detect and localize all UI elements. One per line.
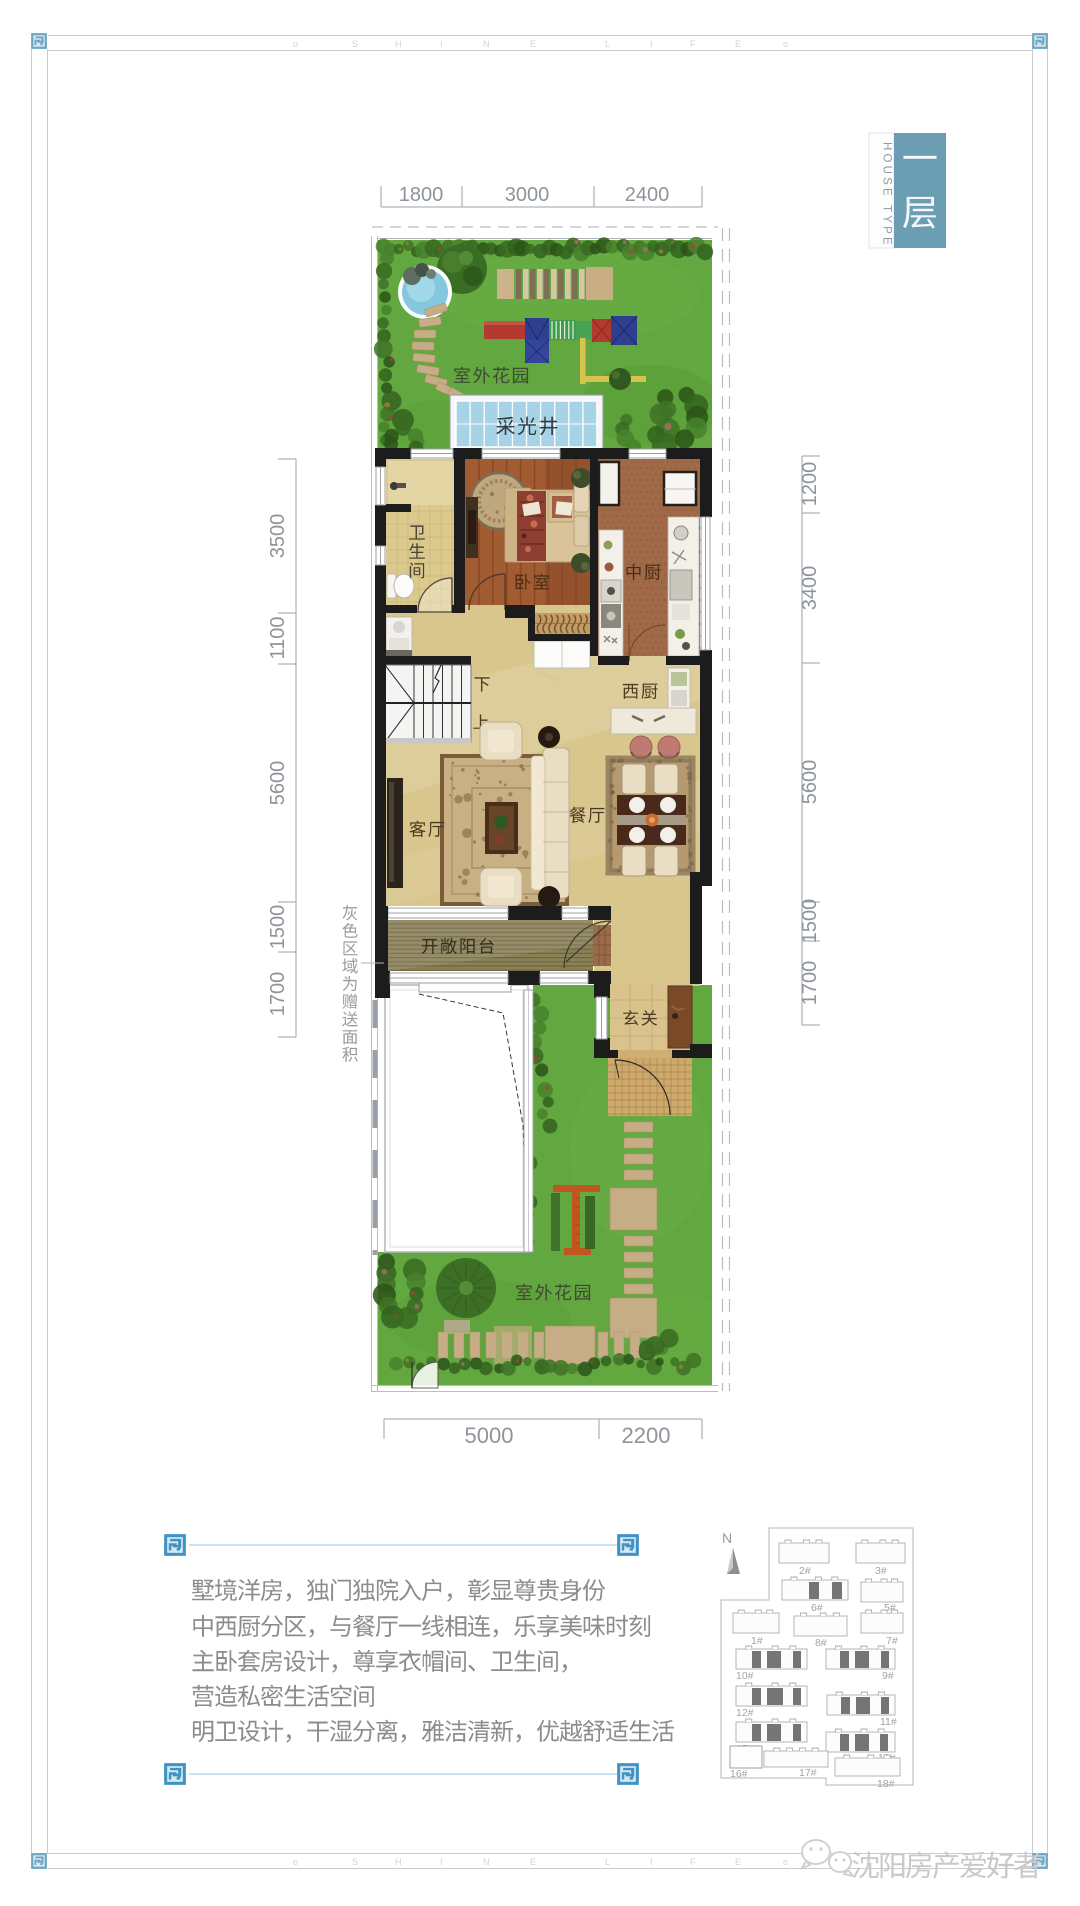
svg-text:1500: 1500	[799, 899, 821, 944]
svg-text:E: E	[530, 39, 536, 49]
svg-text:2#: 2#	[799, 1565, 811, 1577]
svg-text:6#: 6#	[811, 1602, 823, 1614]
svg-text:o: o	[783, 1857, 788, 1867]
svg-text:3500: 3500	[267, 514, 289, 559]
svg-text:7#: 7#	[886, 1635, 898, 1647]
svg-text:H: H	[395, 39, 402, 49]
svg-text:E: E	[735, 1857, 741, 1867]
svg-text:3400: 3400	[799, 566, 821, 611]
svg-text:F: F	[690, 39, 696, 49]
svg-text:10#: 10#	[736, 1670, 754, 1682]
svg-text:o: o	[293, 1857, 298, 1867]
svg-text:5600: 5600	[267, 761, 289, 806]
svg-text:N: N	[722, 1530, 732, 1546]
svg-text:I: I	[440, 39, 443, 49]
svg-text:18#: 18#	[877, 1778, 895, 1790]
svg-text:12#: 12#	[736, 1707, 754, 1719]
svg-text:N: N	[483, 39, 490, 49]
svg-text:F: F	[690, 1857, 696, 1867]
svg-text:11#: 11#	[880, 1716, 897, 1728]
svg-text:1#: 1#	[751, 1635, 763, 1647]
svg-text:2400: 2400	[625, 184, 670, 206]
svg-text:5600: 5600	[799, 760, 821, 805]
svg-text:I: I	[650, 1857, 653, 1867]
svg-text:I: I	[650, 39, 653, 49]
svg-text:N: N	[483, 1857, 490, 1867]
svg-text:S: S	[352, 39, 358, 49]
svg-text:3#: 3#	[875, 1565, 887, 1577]
svg-text:o: o	[293, 39, 298, 49]
svg-text:E: E	[735, 39, 741, 49]
svg-text:S: S	[352, 1857, 358, 1867]
svg-text:L: L	[605, 39, 610, 49]
svg-text:2200: 2200	[622, 1423, 671, 1448]
svg-text:16#: 16#	[730, 1768, 748, 1780]
svg-text:3000: 3000	[505, 184, 550, 206]
svg-text:E: E	[530, 1857, 536, 1867]
svg-text:8#: 8#	[815, 1637, 827, 1649]
svg-text:1700: 1700	[799, 961, 821, 1006]
svg-text:1100: 1100	[267, 616, 289, 659]
svg-text:I: I	[440, 1857, 443, 1867]
svg-text:H: H	[395, 1857, 402, 1867]
svg-text:5000: 5000	[465, 1423, 514, 1448]
svg-text:1500: 1500	[267, 905, 289, 950]
svg-text:1800: 1800	[399, 184, 444, 206]
svg-text:L: L	[605, 1857, 610, 1867]
svg-text:9#: 9#	[882, 1670, 894, 1682]
svg-text:1700: 1700	[267, 972, 289, 1017]
svg-text:17#: 17#	[799, 1767, 817, 1779]
svg-text:o: o	[783, 39, 788, 49]
svg-text:1200: 1200	[799, 462, 821, 507]
svg-text:HOUSE TYPE: HOUSE TYPE	[881, 142, 893, 248]
